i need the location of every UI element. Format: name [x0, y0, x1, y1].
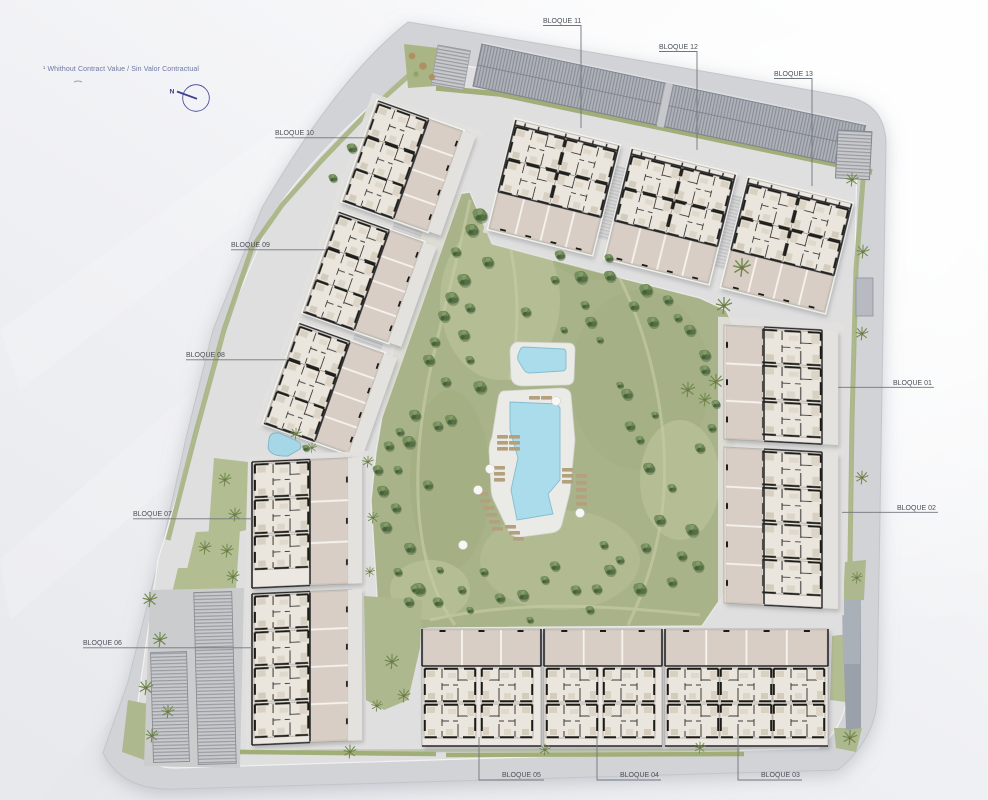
- svg-text:BLOQUE 12: BLOQUE 12: [659, 44, 698, 51]
- svg-text:BLOQUE 11: BLOQUE 11: [543, 18, 581, 25]
- svg-text:N: N: [170, 89, 175, 96]
- svg-text:BLOQUE 13: BLOQUE 13: [774, 71, 813, 78]
- svg-text:¹ Whithout Contract Value / Si: ¹ Whithout Contract Value / Sin Valor Co…: [43, 66, 199, 73]
- svg-text:BLOQUE 05: BLOQUE 05: [502, 772, 541, 779]
- svg-text:BLOQUE 06: BLOQUE 06: [83, 640, 122, 647]
- svg-text:BLOQUE 10: BLOQUE 10: [275, 130, 314, 137]
- svg-text:BLOQUE 07: BLOQUE 07: [133, 511, 172, 518]
- svg-text:BLOQUE 02: BLOQUE 02: [897, 505, 936, 512]
- svg-text:BLOQUE 01: BLOQUE 01: [893, 380, 932, 387]
- svg-text:BLOQUE 03: BLOQUE 03: [761, 772, 800, 779]
- svg-text:BLOQUE 08: BLOQUE 08: [186, 352, 225, 359]
- svg-text:BLOQUE 04: BLOQUE 04: [620, 772, 659, 779]
- svg-text:BLOQUE 09: BLOQUE 09: [231, 242, 270, 249]
